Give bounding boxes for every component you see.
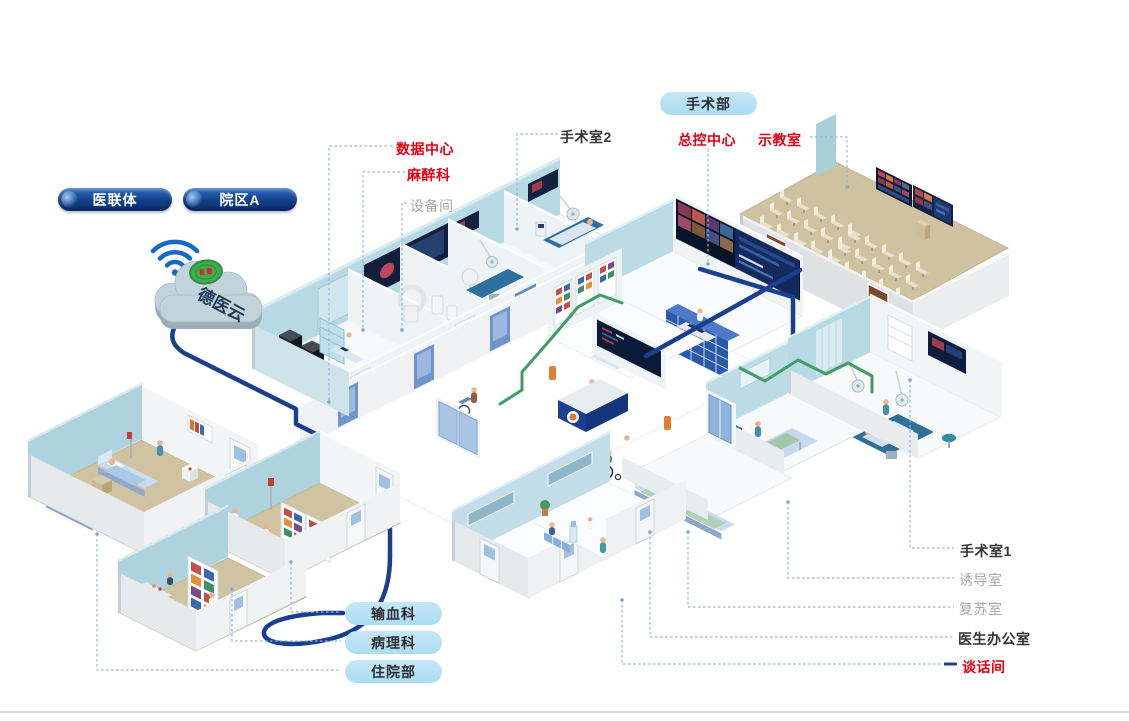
pill-campus-a: 院区A bbox=[183, 188, 297, 211]
leader-induction bbox=[788, 502, 954, 578]
pill-surgery-dept: 手术部 bbox=[660, 92, 757, 115]
cloud-platform-icon: 德医云 bbox=[155, 258, 262, 329]
leader-recovery bbox=[688, 532, 954, 607]
label-talk-room: 谈话间 bbox=[962, 657, 1006, 677]
leader-doctor-office bbox=[650, 532, 952, 637]
label-recovery-room: 复苏室 bbox=[959, 599, 1003, 619]
plant bbox=[540, 500, 550, 510]
label-or1: 手术室1 bbox=[960, 541, 1012, 561]
label-induction-room: 诱导室 bbox=[959, 570, 1003, 590]
label-demo-room: 示教室 bbox=[758, 130, 802, 150]
pill-inpatient-dept: 住院部 bbox=[345, 660, 442, 683]
leader-talk-room bbox=[622, 600, 942, 664]
label-doctor-office: 医生办公室 bbox=[958, 629, 1031, 649]
label-master-control: 总控中心 bbox=[678, 130, 736, 150]
label-anesthesia: 麻醉科 bbox=[407, 165, 451, 185]
pill-medical-alliance: 医联体 bbox=[58, 188, 172, 211]
pill-pathology-dept: 病理科 bbox=[345, 631, 442, 654]
talk-room-dash bbox=[944, 663, 957, 666]
kiosk bbox=[664, 416, 671, 430]
bottom-rule bbox=[0, 711, 1129, 713]
label-data-center: 数据中心 bbox=[396, 139, 454, 159]
label-or2: 手术室2 bbox=[560, 127, 612, 147]
label-equipment-room: 设备间 bbox=[410, 196, 454, 216]
hospital-cloud-diagram: OR3 OR2 bbox=[0, 0, 1129, 721]
water-cooler bbox=[570, 526, 577, 542]
kiosk bbox=[549, 366, 556, 380]
pill-blood-dept: 输血科 bbox=[345, 602, 442, 625]
